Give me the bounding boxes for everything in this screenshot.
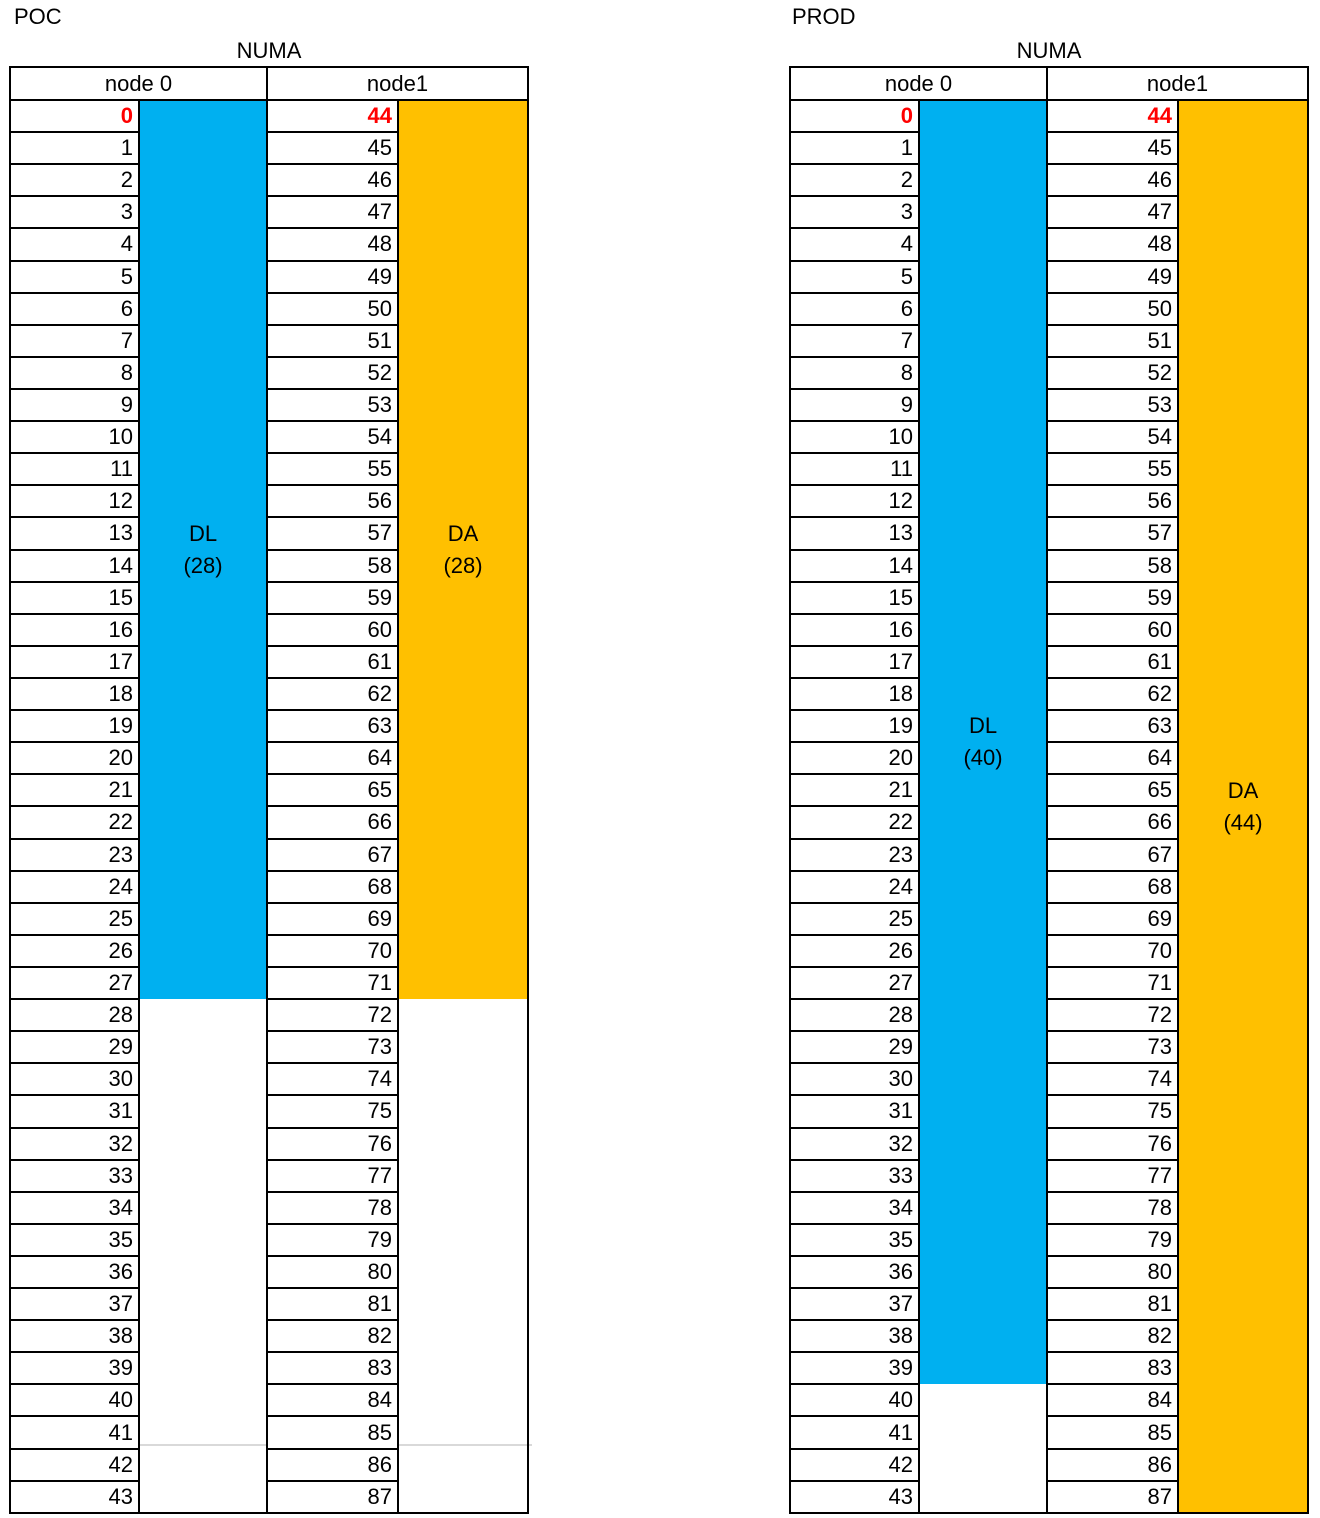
core-cell: 72 — [268, 1000, 397, 1032]
core-grid-poc: 0123456789101112131415161718192021222324… — [11, 101, 527, 1512]
core-cell: 85 — [1048, 1417, 1177, 1449]
core-cell: 32 — [11, 1129, 138, 1161]
core-cell: 69 — [1048, 904, 1177, 936]
core-cell: 78 — [1048, 1193, 1177, 1225]
core-cell: 86 — [268, 1450, 397, 1482]
env-label-prod: PROD — [792, 4, 856, 30]
core-cell: 75 — [268, 1096, 397, 1128]
allocation-column-node1: DA(28) — [399, 101, 527, 1512]
node0-header: node 0 — [11, 68, 268, 99]
core-cell: 83 — [1048, 1353, 1177, 1385]
core-cell: 49 — [1048, 262, 1177, 294]
core-cell: 67 — [268, 840, 397, 872]
core-cell: 33 — [11, 1161, 138, 1193]
node1-header: node1 — [1048, 68, 1307, 99]
core-cell: 50 — [268, 294, 397, 326]
allocation-count: (44) — [1223, 807, 1262, 839]
core-cell: 25 — [11, 904, 138, 936]
core-cell: 53 — [1048, 390, 1177, 422]
core-cell: 19 — [791, 711, 918, 743]
prod-section: PROD NUMA node 0 node1 01234567891011121… — [789, 0, 1309, 1518]
core-cell: 21 — [791, 775, 918, 807]
core-cell: 84 — [1048, 1385, 1177, 1417]
core-cell: 44 — [268, 101, 397, 133]
core-cell: 36 — [791, 1257, 918, 1289]
core-cell: 7 — [11, 326, 138, 358]
core-cell: 39 — [11, 1353, 138, 1385]
core-cell: 16 — [11, 615, 138, 647]
core-id-column-node0: 0123456789101112131415161718192021222324… — [791, 101, 920, 1512]
core-cell: 54 — [1048, 422, 1177, 454]
core-cell: 37 — [11, 1289, 138, 1321]
core-cell: 11 — [11, 454, 138, 486]
core-cell: 85 — [268, 1417, 397, 1449]
core-cell: 34 — [11, 1193, 138, 1225]
core-cell: 1 — [11, 133, 138, 165]
spreadsheet-canvas: POC NUMA node 0 node1 012345678910111213… — [0, 0, 1320, 1518]
core-cell: 80 — [1048, 1257, 1177, 1289]
core-cell: 35 — [11, 1225, 138, 1257]
core-cell: 15 — [11, 583, 138, 615]
core-cell: 64 — [268, 743, 397, 775]
core-cell: 30 — [791, 1064, 918, 1096]
core-cell: 28 — [791, 1000, 918, 1032]
core-cell: 49 — [268, 262, 397, 294]
core-cell: 20 — [791, 743, 918, 775]
core-cell: 9 — [11, 390, 138, 422]
core-cell: 46 — [1048, 165, 1177, 197]
allocation-label: DA — [1228, 775, 1259, 807]
core-cell: 8 — [11, 358, 138, 390]
core-cell: 7 — [791, 326, 918, 358]
core-cell: 71 — [1048, 968, 1177, 1000]
core-cell: 20 — [11, 743, 138, 775]
core-cell: 1 — [791, 133, 918, 165]
core-cell: 57 — [268, 518, 397, 550]
core-cell: 86 — [1048, 1450, 1177, 1482]
core-cell: 18 — [791, 679, 918, 711]
core-cell: 81 — [1048, 1289, 1177, 1321]
core-cell: 45 — [268, 133, 397, 165]
core-cell: 56 — [1048, 486, 1177, 518]
core-id-column-node0: 0123456789101112131415161718192021222324… — [11, 101, 140, 1512]
core-cell: 47 — [268, 197, 397, 229]
core-cell: 26 — [791, 936, 918, 968]
core-cell: 83 — [268, 1353, 397, 1385]
poc-section: POC NUMA node 0 node1 012345678910111213… — [9, 0, 529, 1518]
core-cell: 51 — [1048, 326, 1177, 358]
numa-table-poc: node 0 node1 012345678910111213141516171… — [9, 66, 529, 1514]
core-cell: 63 — [268, 711, 397, 743]
core-cell: 0 — [791, 101, 918, 133]
core-cell: 87 — [1048, 1482, 1177, 1512]
core-cell: 22 — [791, 807, 918, 839]
allocation-label: DL — [189, 518, 217, 550]
core-cell: 6 — [791, 294, 918, 326]
core-cell: 68 — [1048, 872, 1177, 904]
env-label-poc: POC — [14, 4, 62, 30]
core-cell: 46 — [268, 165, 397, 197]
core-cell: 17 — [791, 647, 918, 679]
core-cell: 18 — [11, 679, 138, 711]
core-cell: 5 — [791, 262, 918, 294]
core-cell: 58 — [1048, 551, 1177, 583]
numa-title-poc: NUMA — [9, 38, 529, 64]
core-cell: 47 — [1048, 197, 1177, 229]
core-cell: 64 — [1048, 743, 1177, 775]
core-cell: 68 — [268, 872, 397, 904]
core-cell: 23 — [11, 840, 138, 872]
core-cell: 45 — [1048, 133, 1177, 165]
core-cell: 9 — [791, 390, 918, 422]
core-cell: 17 — [11, 647, 138, 679]
core-cell: 19 — [11, 711, 138, 743]
core-cell: 13 — [791, 518, 918, 550]
core-cell: 23 — [791, 840, 918, 872]
allocation-column-node0: DL(40) — [920, 101, 1048, 1512]
core-cell: 84 — [268, 1385, 397, 1417]
core-cell: 87 — [268, 1482, 397, 1512]
core-cell: 59 — [1048, 583, 1177, 615]
core-cell: 38 — [11, 1321, 138, 1353]
core-cell: 54 — [268, 422, 397, 454]
core-cell: 37 — [791, 1289, 918, 1321]
core-cell: 65 — [268, 775, 397, 807]
numa-title-prod: NUMA — [789, 38, 1309, 64]
core-cell: 82 — [268, 1321, 397, 1353]
core-cell: 22 — [11, 807, 138, 839]
core-cell: 60 — [1048, 615, 1177, 647]
core-cell: 77 — [268, 1161, 397, 1193]
core-cell: 81 — [268, 1289, 397, 1321]
core-cell: 14 — [791, 551, 918, 583]
dl-allocation-block: DL(28) — [140, 101, 266, 999]
core-cell: 77 — [1048, 1161, 1177, 1193]
core-cell: 80 — [268, 1257, 397, 1289]
core-cell: 10 — [11, 422, 138, 454]
core-cell: 31 — [11, 1096, 138, 1128]
core-cell: 75 — [1048, 1096, 1177, 1128]
core-cell: 71 — [268, 968, 397, 1000]
core-cell: 72 — [1048, 1000, 1177, 1032]
allocation-count: (40) — [963, 742, 1002, 774]
core-cell: 5 — [11, 262, 138, 294]
core-cell: 73 — [268, 1032, 397, 1064]
da-allocation-block: DA(44) — [1179, 101, 1307, 1512]
core-cell: 29 — [791, 1032, 918, 1064]
core-cell: 0 — [11, 101, 138, 133]
core-id-column-node1: 4445464748495051525354555657585960616263… — [268, 101, 399, 1512]
core-cell: 8 — [791, 358, 918, 390]
core-cell: 6 — [11, 294, 138, 326]
core-cell: 42 — [791, 1450, 918, 1482]
numa-table-prod: node 0 node1 012345678910111213141516171… — [789, 66, 1309, 1514]
core-cell: 79 — [268, 1225, 397, 1257]
core-cell: 13 — [11, 518, 138, 550]
core-cell: 57 — [1048, 518, 1177, 550]
core-cell: 4 — [11, 229, 138, 261]
allocation-column-node0: DL(28) — [140, 101, 268, 1512]
core-cell: 3 — [791, 197, 918, 229]
core-cell: 66 — [1048, 807, 1177, 839]
core-cell: 29 — [11, 1032, 138, 1064]
core-cell: 12 — [791, 486, 918, 518]
core-cell: 11 — [791, 454, 918, 486]
core-cell: 43 — [791, 1482, 918, 1512]
core-cell: 2 — [791, 165, 918, 197]
core-cell: 61 — [1048, 647, 1177, 679]
node1-header: node1 — [268, 68, 527, 99]
core-cell: 66 — [268, 807, 397, 839]
core-cell: 42 — [11, 1450, 138, 1482]
core-cell: 28 — [11, 1000, 138, 1032]
core-cell: 82 — [1048, 1321, 1177, 1353]
header-row: node 0 node1 — [791, 68, 1307, 101]
core-cell: 44 — [1048, 101, 1177, 133]
core-cell: 35 — [791, 1225, 918, 1257]
header-row: node 0 node1 — [11, 68, 527, 101]
core-cell: 24 — [11, 872, 138, 904]
core-cell: 27 — [791, 968, 918, 1000]
core-cell: 50 — [1048, 294, 1177, 326]
core-cell: 51 — [268, 326, 397, 358]
core-cell: 74 — [1048, 1064, 1177, 1096]
core-cell: 41 — [11, 1417, 138, 1449]
core-cell: 25 — [791, 904, 918, 936]
core-cell: 56 — [268, 486, 397, 518]
core-cell: 33 — [791, 1161, 918, 1193]
core-cell: 59 — [268, 583, 397, 615]
core-cell: 31 — [791, 1096, 918, 1128]
core-cell: 27 — [11, 968, 138, 1000]
node0-header: node 0 — [791, 68, 1048, 99]
core-cell: 62 — [268, 679, 397, 711]
core-cell: 73 — [1048, 1032, 1177, 1064]
core-cell: 65 — [1048, 775, 1177, 807]
core-cell: 39 — [791, 1353, 918, 1385]
core-cell: 14 — [11, 551, 138, 583]
core-cell: 48 — [268, 229, 397, 261]
core-cell: 15 — [791, 583, 918, 615]
core-cell: 58 — [268, 551, 397, 583]
core-cell: 30 — [11, 1064, 138, 1096]
core-cell: 41 — [791, 1417, 918, 1449]
core-cell: 76 — [1048, 1129, 1177, 1161]
allocation-column-node1: DA(44) — [1179, 101, 1307, 1512]
core-cell: 24 — [791, 872, 918, 904]
core-cell: 62 — [1048, 679, 1177, 711]
core-cell: 26 — [11, 936, 138, 968]
core-grid-prod: 0123456789101112131415161718192021222324… — [791, 101, 1307, 1512]
da-allocation-block: DA(28) — [399, 101, 527, 999]
core-cell: 48 — [1048, 229, 1177, 261]
core-cell: 21 — [11, 775, 138, 807]
core-cell: 52 — [268, 358, 397, 390]
core-cell: 74 — [268, 1064, 397, 1096]
core-cell: 3 — [11, 197, 138, 229]
core-cell: 60 — [268, 615, 397, 647]
allocation-label: DL — [969, 710, 997, 742]
core-cell: 40 — [791, 1385, 918, 1417]
core-cell: 79 — [1048, 1225, 1177, 1257]
core-cell: 78 — [268, 1193, 397, 1225]
core-cell: 12 — [11, 486, 138, 518]
core-cell: 52 — [1048, 358, 1177, 390]
core-cell: 55 — [1048, 454, 1177, 486]
core-cell: 16 — [791, 615, 918, 647]
core-cell: 67 — [1048, 840, 1177, 872]
core-cell: 34 — [791, 1193, 918, 1225]
core-cell: 63 — [1048, 711, 1177, 743]
core-cell: 43 — [11, 1482, 138, 1512]
core-cell: 40 — [11, 1385, 138, 1417]
core-cell: 36 — [11, 1257, 138, 1289]
core-cell: 38 — [791, 1321, 918, 1353]
core-id-column-node1: 4445464748495051525354555657585960616263… — [1048, 101, 1179, 1512]
allocation-label: DA — [448, 518, 479, 550]
core-cell: 32 — [791, 1129, 918, 1161]
core-cell: 70 — [1048, 936, 1177, 968]
core-cell: 4 — [791, 229, 918, 261]
core-cell: 69 — [268, 904, 397, 936]
core-cell: 55 — [268, 454, 397, 486]
core-cell: 70 — [268, 936, 397, 968]
core-cell: 61 — [268, 647, 397, 679]
allocation-count: (28) — [183, 550, 222, 582]
dl-allocation-block: DL(40) — [920, 101, 1046, 1384]
allocation-count: (28) — [443, 550, 482, 582]
core-cell: 10 — [791, 422, 918, 454]
core-cell: 2 — [11, 165, 138, 197]
core-cell: 76 — [268, 1129, 397, 1161]
core-cell: 53 — [268, 390, 397, 422]
